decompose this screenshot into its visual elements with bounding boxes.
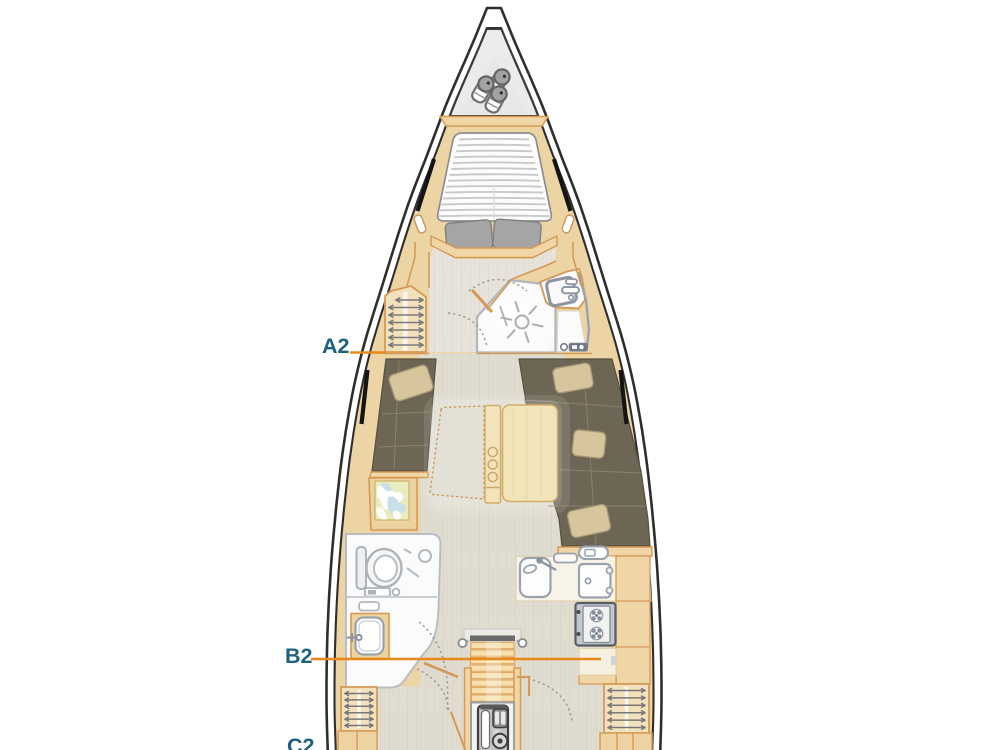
- svg-text:B2: B2: [285, 644, 313, 668]
- svg-text:A2: A2: [322, 334, 350, 358]
- svg-text:C2: C2: [287, 734, 315, 750]
